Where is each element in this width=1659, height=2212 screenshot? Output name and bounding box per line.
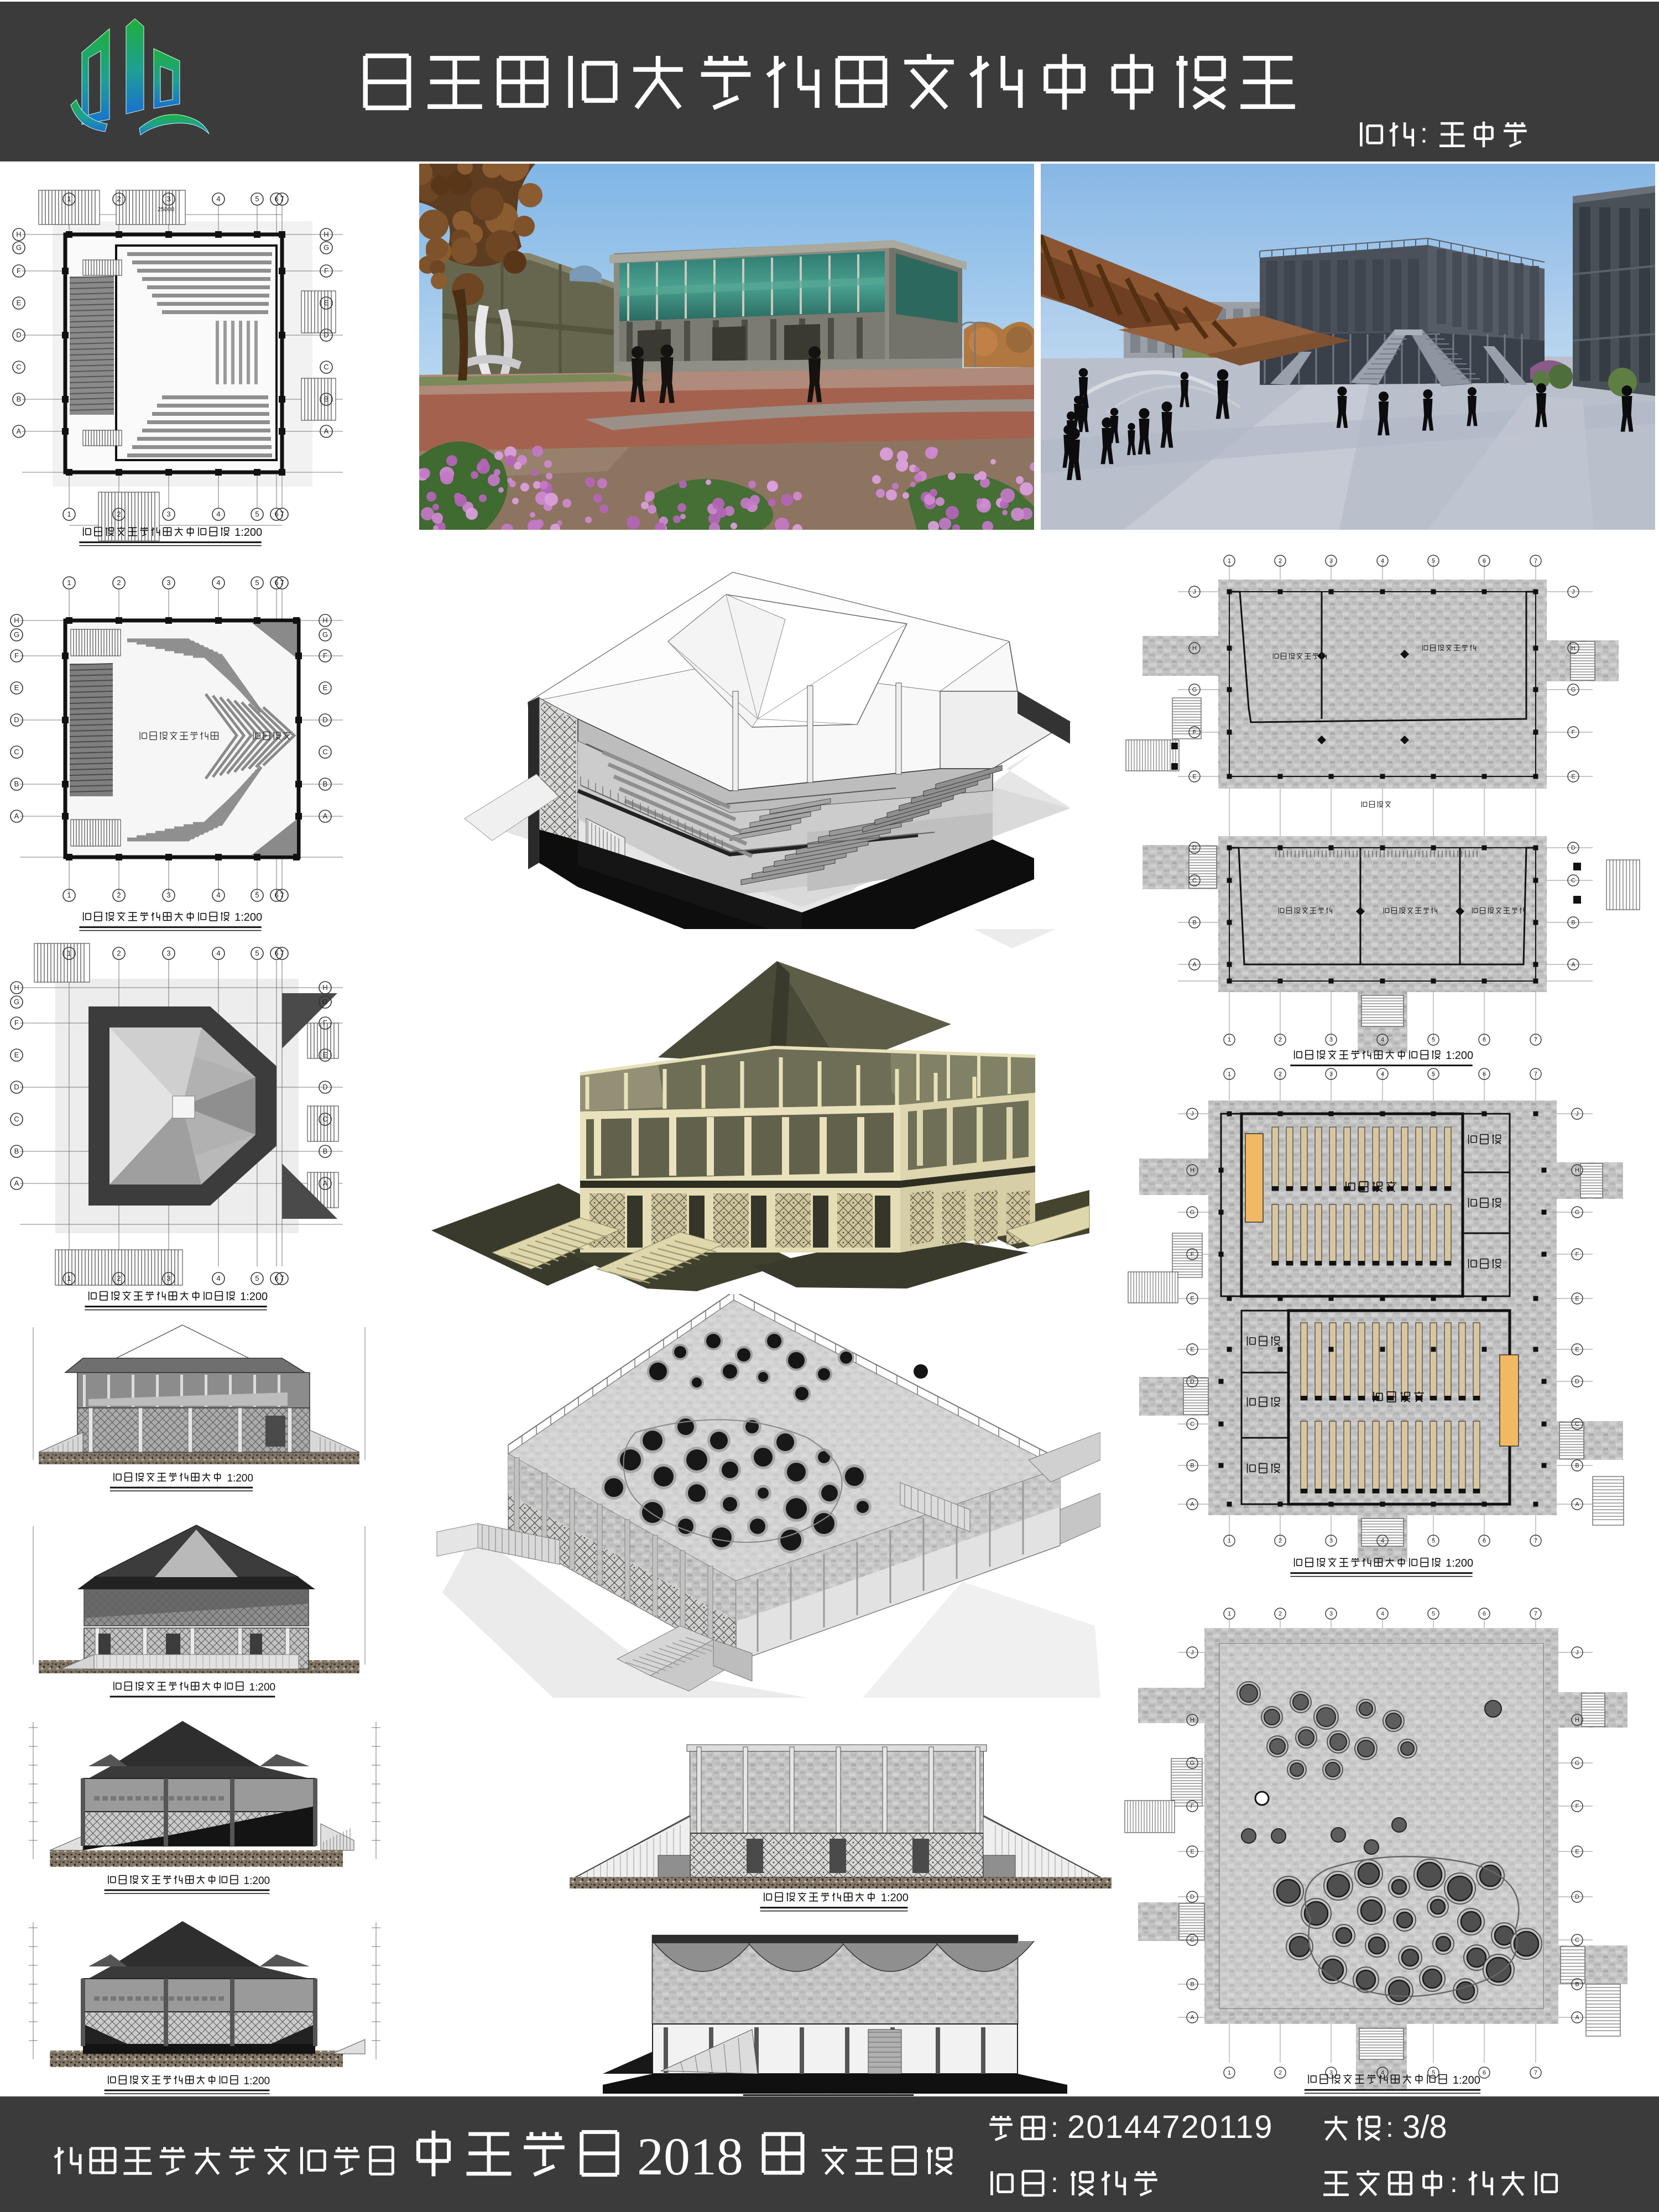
svg-text:J: J xyxy=(1193,589,1196,596)
svg-text:5: 5 xyxy=(255,1274,259,1282)
svg-text:7: 7 xyxy=(1534,2070,1537,2077)
svg-text:3: 3 xyxy=(166,510,170,518)
svg-text:4: 4 xyxy=(1381,2070,1384,2077)
svg-text:C: C xyxy=(1190,1421,1194,1428)
svg-text:1: 1 xyxy=(67,578,71,587)
svg-text:1: 1 xyxy=(1228,1538,1231,1545)
svg-text:A: A xyxy=(1575,2015,1579,2021)
svg-text:7: 7 xyxy=(1534,1037,1537,1044)
svg-text:A: A xyxy=(1190,1501,1194,1508)
svg-text:J: J xyxy=(1191,1111,1194,1118)
svg-text:A: A xyxy=(1190,2015,1194,2021)
svg-text:F: F xyxy=(14,1019,19,1027)
svg-text:E: E xyxy=(324,299,329,307)
svg-text:4: 4 xyxy=(216,195,220,203)
svg-text:4: 4 xyxy=(216,949,220,957)
svg-text:6: 6 xyxy=(1483,1037,1486,1044)
svg-text::: : xyxy=(1420,118,1428,149)
svg-text:5: 5 xyxy=(255,949,259,957)
svg-text:2: 2 xyxy=(117,195,121,203)
svg-text:7: 7 xyxy=(280,195,284,203)
svg-text:H: H xyxy=(1192,645,1197,652)
svg-text:5: 5 xyxy=(1432,1611,1435,1618)
svg-text:3/8: 3/8 xyxy=(1402,2109,1447,2145)
svg-text:G: G xyxy=(1575,1760,1580,1767)
svg-text:E: E xyxy=(1190,1296,1194,1302)
svg-text:J: J xyxy=(1575,1650,1579,1656)
svg-text:E: E xyxy=(1575,1296,1579,1302)
svg-text:H: H xyxy=(322,983,327,992)
svg-text:C: C xyxy=(322,748,327,756)
svg-text:F: F xyxy=(17,267,21,275)
svg-text:2: 2 xyxy=(1279,558,1282,565)
svg-text:E: E xyxy=(17,299,22,307)
svg-text:F: F xyxy=(1572,729,1575,736)
svg-text:G: G xyxy=(1190,1760,1195,1767)
svg-text:D: D xyxy=(1190,1379,1194,1385)
svg-text:D: D xyxy=(322,1083,327,1091)
svg-text:2: 2 xyxy=(1279,1611,1282,1618)
svg-text:G: G xyxy=(1571,687,1576,693)
svg-text:7: 7 xyxy=(1534,558,1537,565)
svg-text:3: 3 xyxy=(166,891,170,899)
svg-text:H: H xyxy=(1190,1167,1194,1174)
svg-text:B: B xyxy=(1190,1463,1194,1469)
svg-text:E: E xyxy=(1190,1849,1194,1855)
svg-text:1:200: 1:200 xyxy=(244,1875,270,1887)
svg-text:A: A xyxy=(1571,962,1575,968)
svg-text:F: F xyxy=(323,1019,327,1027)
svg-text:1: 1 xyxy=(1228,1037,1231,1044)
svg-text:7: 7 xyxy=(280,510,284,518)
svg-text:E: E xyxy=(14,1051,19,1059)
svg-text:1: 1 xyxy=(67,949,71,957)
svg-text:4: 4 xyxy=(1381,558,1384,565)
svg-text:1: 1 xyxy=(1228,1611,1231,1618)
svg-text:B: B xyxy=(1192,920,1196,926)
svg-text:25000: 25000 xyxy=(158,206,175,213)
svg-text:1: 1 xyxy=(1228,1071,1231,1078)
svg-text:H: H xyxy=(16,230,21,238)
svg-text:G: G xyxy=(1190,1209,1195,1216)
svg-text:1:200: 1:200 xyxy=(234,911,262,924)
svg-text:C: C xyxy=(14,1115,19,1123)
svg-text:7: 7 xyxy=(1534,1611,1537,1618)
svg-text:1:200: 1:200 xyxy=(240,1291,268,1303)
svg-text:F: F xyxy=(1193,729,1197,736)
svg-text:E: E xyxy=(1575,1347,1579,1353)
svg-text:B: B xyxy=(14,780,19,788)
svg-text:1: 1 xyxy=(67,891,71,899)
svg-text::: : xyxy=(1051,2167,1058,2198)
svg-text:3: 3 xyxy=(1329,1037,1333,1044)
svg-text:7: 7 xyxy=(280,578,284,587)
svg-text:E: E xyxy=(323,684,328,692)
svg-text:G: G xyxy=(14,998,19,1006)
svg-text:H: H xyxy=(1190,1717,1194,1724)
svg-text:1: 1 xyxy=(67,195,71,203)
svg-text:H: H xyxy=(324,230,328,238)
svg-text:G: G xyxy=(1575,1209,1580,1216)
svg-text:H: H xyxy=(1575,1167,1579,1174)
svg-text:2: 2 xyxy=(117,949,121,957)
svg-text:5: 5 xyxy=(1432,558,1435,565)
svg-text:D: D xyxy=(16,331,21,339)
svg-text:E: E xyxy=(1571,774,1575,780)
svg-text:1:200: 1:200 xyxy=(227,1473,253,1484)
svg-text:5: 5 xyxy=(255,578,259,587)
svg-text:C: C xyxy=(1190,1937,1194,1944)
svg-text:1:200: 1:200 xyxy=(244,2075,270,2087)
svg-text:2: 2 xyxy=(1279,1538,1282,1545)
svg-text:A: A xyxy=(17,427,22,435)
svg-text:5: 5 xyxy=(255,510,259,518)
svg-text:3: 3 xyxy=(166,578,170,587)
svg-text:3: 3 xyxy=(1329,1538,1333,1545)
svg-text:F: F xyxy=(1191,1803,1194,1810)
svg-text:7: 7 xyxy=(1534,1071,1537,1078)
svg-text:B: B xyxy=(14,1147,19,1155)
svg-text:C: C xyxy=(322,1115,327,1123)
svg-text:G: G xyxy=(322,630,328,639)
svg-text:3: 3 xyxy=(1329,1071,1333,1078)
svg-text:D: D xyxy=(14,716,19,724)
svg-text::: : xyxy=(1386,2112,1394,2143)
svg-text:3: 3 xyxy=(1329,1611,1333,1618)
svg-text:A: A xyxy=(1192,962,1197,968)
svg-text:D: D xyxy=(324,331,328,339)
svg-text:A: A xyxy=(14,812,19,820)
svg-text:F: F xyxy=(323,651,327,660)
svg-text:C: C xyxy=(14,748,19,756)
svg-text:2: 2 xyxy=(117,1274,121,1282)
svg-text:D: D xyxy=(1192,845,1197,852)
svg-text:4: 4 xyxy=(216,578,220,587)
svg-text:F: F xyxy=(1575,1803,1579,1810)
svg-text:A: A xyxy=(323,812,328,820)
svg-text:D: D xyxy=(1190,1894,1194,1901)
svg-text:A: A xyxy=(324,427,329,435)
svg-text:H: H xyxy=(322,616,327,624)
svg-text:G: G xyxy=(322,998,328,1006)
svg-text:G: G xyxy=(14,630,19,639)
svg-text:B: B xyxy=(1571,920,1575,926)
svg-text:2: 2 xyxy=(1279,1071,1282,1078)
svg-text:B: B xyxy=(1575,1463,1579,1469)
svg-text:E: E xyxy=(14,684,19,692)
svg-text:E: E xyxy=(1190,1347,1194,1353)
svg-text:1:200: 1:200 xyxy=(234,526,262,539)
svg-text:A: A xyxy=(14,1179,19,1187)
svg-text:C: C xyxy=(1575,1421,1579,1428)
svg-text:3: 3 xyxy=(166,949,170,957)
svg-text:4: 4 xyxy=(216,510,220,518)
svg-text:D: D xyxy=(14,1083,19,1091)
svg-text:1:200: 1:200 xyxy=(1446,1557,1473,1569)
svg-text:H: H xyxy=(1575,1717,1579,1724)
svg-text:H: H xyxy=(1571,645,1575,652)
svg-text:B: B xyxy=(1575,1981,1579,1988)
svg-text:6: 6 xyxy=(1483,558,1486,565)
svg-text:6: 6 xyxy=(1483,1538,1486,1545)
svg-text:6: 6 xyxy=(1483,2070,1486,2077)
svg-text:4: 4 xyxy=(1381,1071,1384,1078)
svg-text:3: 3 xyxy=(166,195,170,203)
svg-text:J: J xyxy=(1572,589,1575,596)
svg-text:5: 5 xyxy=(1432,1037,1435,1044)
svg-text:2: 2 xyxy=(117,578,121,587)
svg-text:F: F xyxy=(14,651,19,660)
svg-text:1:200: 1:200 xyxy=(1453,2074,1480,2086)
svg-text:4: 4 xyxy=(216,1274,220,1282)
svg-text:5: 5 xyxy=(1432,1538,1435,1545)
svg-text:5: 5 xyxy=(1432,2070,1435,2077)
svg-text:2: 2 xyxy=(1279,2070,1282,2077)
svg-text:D: D xyxy=(1575,1379,1579,1385)
svg-text:J: J xyxy=(1191,1650,1194,1656)
svg-text:4: 4 xyxy=(216,891,220,899)
svg-text:H: H xyxy=(14,983,19,992)
svg-text:1:200: 1:200 xyxy=(1446,1050,1473,1062)
svg-text:2: 2 xyxy=(117,510,121,518)
svg-text:B: B xyxy=(323,780,328,788)
svg-text:2: 2 xyxy=(117,891,121,899)
svg-text:F: F xyxy=(324,267,328,275)
svg-text:F: F xyxy=(1575,1251,1579,1258)
svg-text:1: 1 xyxy=(67,1274,71,1282)
svg-text:C: C xyxy=(16,363,21,371)
svg-text:B: B xyxy=(323,1147,328,1155)
svg-text:7: 7 xyxy=(280,891,284,899)
svg-text:A: A xyxy=(1575,1501,1579,1508)
svg-text:5: 5 xyxy=(255,891,259,899)
svg-text:C: C xyxy=(1571,878,1575,884)
svg-text:G: G xyxy=(1192,687,1197,693)
svg-text:2018: 2018 xyxy=(637,2127,743,2186)
svg-text:5: 5 xyxy=(255,195,259,203)
svg-text:A: A xyxy=(323,1179,328,1187)
svg-text:7: 7 xyxy=(280,949,284,957)
svg-text:J: J xyxy=(1575,1111,1579,1118)
svg-text:D: D xyxy=(1571,845,1575,852)
svg-text:C: C xyxy=(1575,1937,1579,1944)
svg-text:1:200: 1:200 xyxy=(881,1892,909,1904)
svg-text:20144720119: 20144720119 xyxy=(1067,2109,1274,2145)
svg-text:6: 6 xyxy=(1483,1071,1486,1078)
svg-text:4: 4 xyxy=(1381,1538,1384,1545)
svg-text:B: B xyxy=(17,395,22,403)
svg-text:D: D xyxy=(1575,1894,1579,1901)
svg-text:7: 7 xyxy=(1534,1538,1537,1545)
svg-text:B: B xyxy=(324,395,329,403)
svg-text::: : xyxy=(1051,2112,1058,2143)
svg-text:G: G xyxy=(324,243,329,252)
svg-text:1:200: 1:200 xyxy=(887,2079,915,2091)
svg-text:5: 5 xyxy=(1432,1071,1435,1078)
svg-text:6: 6 xyxy=(1483,1611,1486,1618)
svg-text:E: E xyxy=(1192,774,1196,780)
svg-text:4: 4 xyxy=(1381,1611,1384,1618)
svg-text:F: F xyxy=(1191,1251,1194,1258)
svg-text:1:200: 1:200 xyxy=(249,1682,276,1693)
svg-text:B: B xyxy=(1190,1981,1194,1988)
svg-text:1: 1 xyxy=(67,510,71,518)
svg-text:3: 3 xyxy=(166,1274,170,1282)
svg-text:4: 4 xyxy=(1381,1037,1384,1044)
svg-text:C: C xyxy=(324,363,328,371)
svg-text:1: 1 xyxy=(1228,2070,1231,2077)
svg-text:D: D xyxy=(322,716,327,724)
svg-text:G: G xyxy=(16,243,22,252)
svg-text:3: 3 xyxy=(1329,558,1333,565)
svg-text::: : xyxy=(1450,2167,1458,2198)
svg-text:E: E xyxy=(1575,1849,1579,1855)
svg-text:7: 7 xyxy=(280,1274,284,1282)
svg-text:E: E xyxy=(323,1051,328,1059)
svg-text:2: 2 xyxy=(1279,1037,1282,1044)
svg-text:1: 1 xyxy=(1228,558,1231,565)
svg-text:C: C xyxy=(1192,878,1197,884)
svg-text:H: H xyxy=(14,616,19,624)
